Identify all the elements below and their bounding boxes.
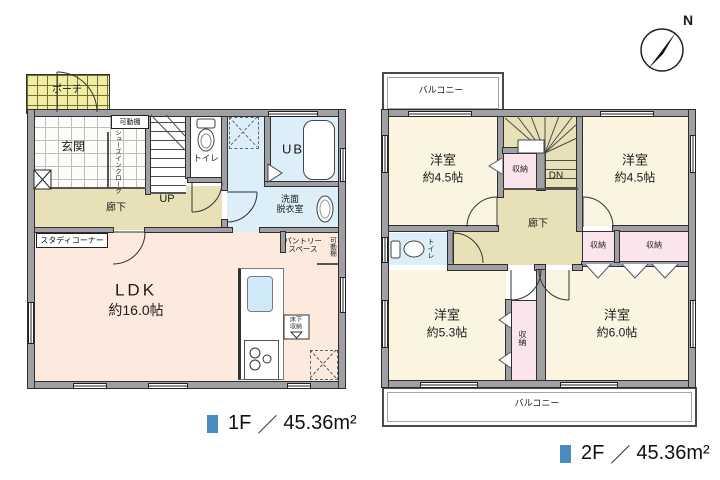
closet-mid-label: 収納: [518, 330, 526, 346]
window: [73, 383, 107, 389]
shoe-closet-label: シューズインクローク: [113, 129, 120, 194]
wall: [537, 153, 545, 190]
stairs-up-label: UP: [159, 193, 174, 205]
entrance-step-line: [32, 187, 146, 189]
wall: [573, 265, 582, 270]
window: [408, 111, 472, 117]
window: [340, 277, 346, 313]
bath-label: UB: [282, 143, 304, 158]
window: [340, 148, 346, 182]
pantry-shelf-line: [317, 263, 341, 265]
legend-floor-1f: 1F: [228, 412, 251, 435]
closet-wide-label: 収納: [646, 242, 662, 251]
wall: [506, 300, 511, 381]
wall: [615, 231, 619, 262]
floor-plan-canvas: ポーチ 玄関 可動棚 シューズインクローク UP トイレ UB 洗面脱衣室 廊下…: [0, 0, 720, 480]
room-sw-label: 洋室: [434, 309, 460, 324]
toilet-label-2f: トイレ: [427, 238, 434, 259]
ldk-size-label: 約16.0帖: [108, 303, 163, 319]
window: [28, 302, 34, 344]
floor-storage-label: 床下収納: [290, 317, 302, 330]
wall: [498, 116, 503, 197]
legend-marker-1f: [207, 415, 218, 433]
porch-label: ポーチ: [52, 84, 82, 95]
room-toilet-1f: [188, 114, 222, 178]
window: [148, 383, 188, 389]
legend-marker-2f: [560, 445, 571, 463]
room-ldk: [32, 232, 341, 384]
balcony-bottom-label: バルコニー: [515, 398, 560, 408]
room-hallway-2f-west: [448, 228, 498, 265]
window: [420, 382, 478, 388]
balcony-top-label: バルコニー: [419, 85, 464, 95]
wall: [260, 228, 345, 232]
stairs2-edge-line: [503, 188, 578, 190]
window: [690, 135, 696, 173]
window: [268, 111, 318, 117]
legend-floor-2f: 2F: [581, 442, 604, 465]
legend-1f: 1F ／ 45.36m²: [207, 409, 363, 438]
wall-outer: [28, 110, 34, 388]
wall: [265, 182, 338, 186]
window: [382, 300, 388, 348]
wall: [582, 262, 692, 266]
window: [382, 237, 388, 263]
window: [600, 111, 654, 117]
wall: [382, 226, 498, 231]
room-ne-label: 洋室: [622, 154, 648, 169]
legend-area-2f: 45.36m²: [636, 442, 709, 465]
wall: [448, 231, 453, 265]
pantry-label: パントリースペース: [284, 238, 322, 255]
legend-slash-1f: ／: [257, 409, 277, 438]
wall: [613, 226, 689, 231]
room-ne-size-label: 約4.5帖: [615, 171, 656, 184]
room-nw-label: 洋室: [430, 154, 456, 169]
wall: [145, 228, 232, 232]
study-corner-label-box: スタディコーナー: [36, 233, 108, 248]
window: [287, 383, 311, 389]
wall: [186, 114, 190, 178]
closet-divider-line: [107, 132, 109, 187]
window: [382, 135, 388, 173]
compass-north-label: N: [683, 13, 693, 29]
stairs-dn-label: DN: [549, 170, 563, 181]
room-hallway-1f: [32, 186, 222, 230]
wall: [577, 116, 582, 231]
tatami-corner-space: [310, 350, 338, 380]
room-se-label: 洋室: [604, 309, 630, 324]
room-nw-size-label: 約4.5帖: [423, 171, 464, 184]
shelf-label-box: 可動棚: [111, 115, 149, 129]
window: [690, 300, 696, 348]
wall: [28, 228, 113, 232]
stairs-1f: [150, 114, 186, 193]
pantry-shelf-label: 可動棚: [328, 237, 335, 257]
legend-area-1f: 45.36m²: [283, 412, 356, 435]
wall: [222, 114, 227, 190]
wall: [265, 114, 270, 186]
closet-stairs-label: 収納: [512, 166, 528, 175]
legend-slash-2f: ／: [610, 439, 630, 468]
ldk-label: LDK: [115, 280, 157, 299]
entrance-label: 玄関: [61, 140, 85, 153]
wall: [448, 265, 507, 270]
kitchen-stove: [244, 340, 279, 380]
wall: [537, 270, 545, 381]
compass-icon: [641, 29, 683, 71]
hallway-label-2f: 廊下: [528, 218, 548, 229]
toilet-label-1f: トイレ: [193, 154, 219, 164]
closet-small-label: 収納: [590, 242, 606, 251]
kitchen-sink: [247, 276, 273, 312]
legend-2f: 2F ／ 45.36m²: [560, 439, 716, 468]
bathtub: [303, 120, 335, 180]
window: [560, 382, 618, 388]
wall: [188, 178, 226, 182]
room-sw-size-label: 約5.3帖: [427, 326, 468, 339]
room-se-size-label: 約6.0帖: [597, 326, 638, 339]
hallway-label-1f: 廊下: [106, 202, 126, 213]
wall: [503, 148, 537, 153]
washer-space: [229, 117, 259, 149]
washroom-label: 洗面脱衣室: [276, 194, 303, 214]
room-toilet-2f: [388, 233, 448, 265]
